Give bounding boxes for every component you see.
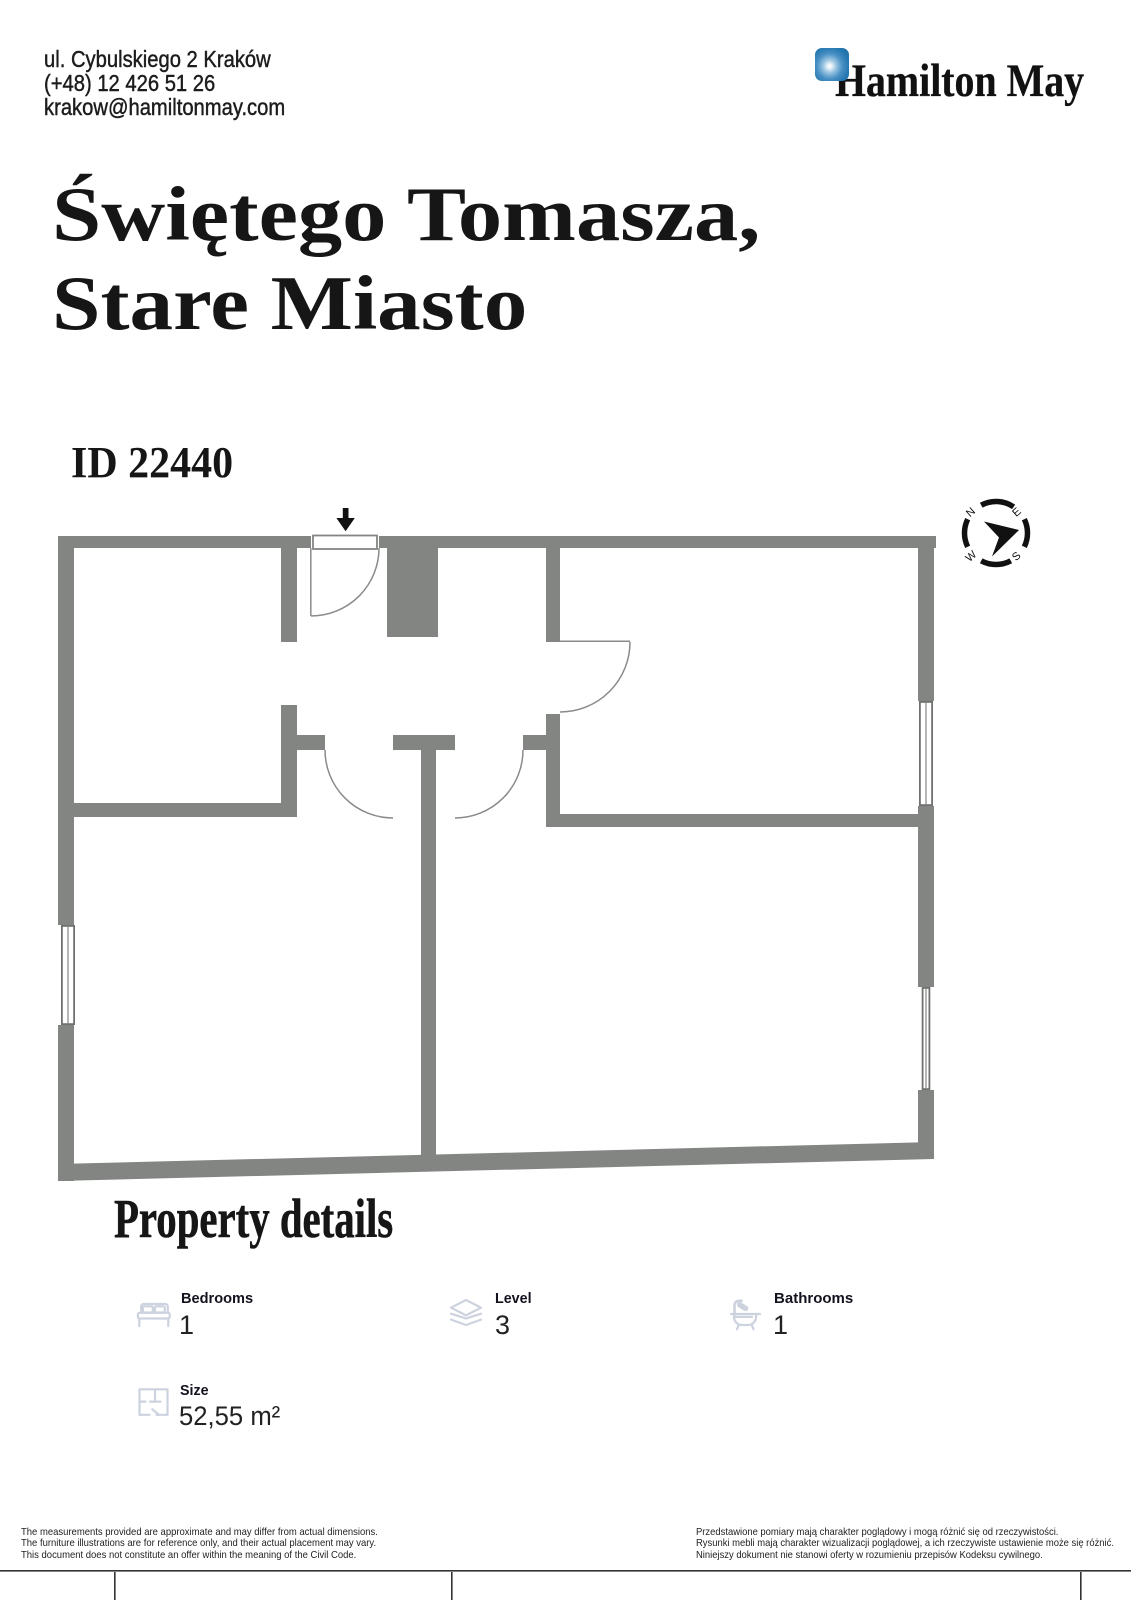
svg-text:W: W [963,548,979,564]
svg-text:S: S [1010,550,1023,564]
svg-text:E: E [1010,506,1023,520]
svg-text:N: N [964,505,978,519]
